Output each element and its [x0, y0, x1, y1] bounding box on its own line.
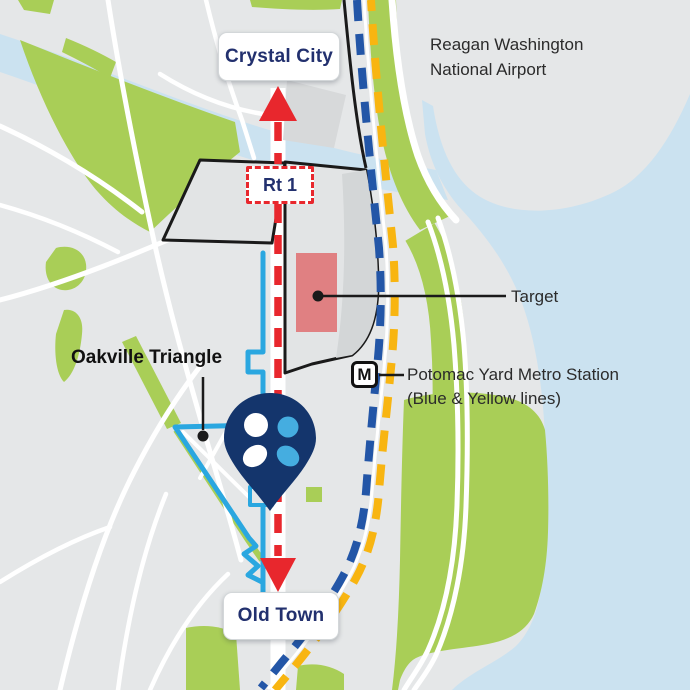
metro-station-name: Potomac Yard Metro Station [407, 363, 687, 387]
road [118, 494, 166, 690]
map-canvas [0, 0, 690, 690]
old-town-text: Old Town [238, 605, 325, 627]
location-pin-icon [224, 393, 316, 511]
logo-head-white [244, 413, 268, 437]
airport-label: Reagan Washington National Airport [430, 32, 608, 82]
road [0, 205, 118, 252]
metro-station-icon: M [351, 361, 378, 388]
top-green-strip [250, 0, 342, 10]
logo-head-blue [278, 417, 299, 438]
route1-shield: Rt 1 [246, 166, 314, 204]
road [60, 364, 202, 690]
crystal-city-text: Crystal City [225, 46, 333, 68]
oakville-triangle-label: Oakville Triangle [71, 347, 222, 369]
metro-station-lines: (Blue & Yellow lines) [407, 387, 687, 411]
west-green-patch-2 [55, 310, 82, 382]
metro-station-icon-letter: M [357, 365, 371, 385]
pin-body [224, 393, 316, 511]
crystal-city-label: Crystal City [218, 32, 340, 81]
old-town-label: Old Town [223, 592, 339, 640]
small-green-block [306, 487, 322, 502]
bottom-green-patch-2 [296, 664, 344, 690]
metro-station-label: Potomac Yard Metro Station (Blue & Yello… [407, 363, 687, 411]
target-label: Target [511, 287, 558, 307]
top-left-green [18, 0, 54, 14]
target-leader-dot [313, 291, 324, 302]
oakville-leader-dot [198, 431, 209, 442]
potomac-yard-area-map: Crystal City Reagan Washington National … [0, 0, 690, 690]
route1-shield-text: Rt 1 [263, 175, 297, 196]
